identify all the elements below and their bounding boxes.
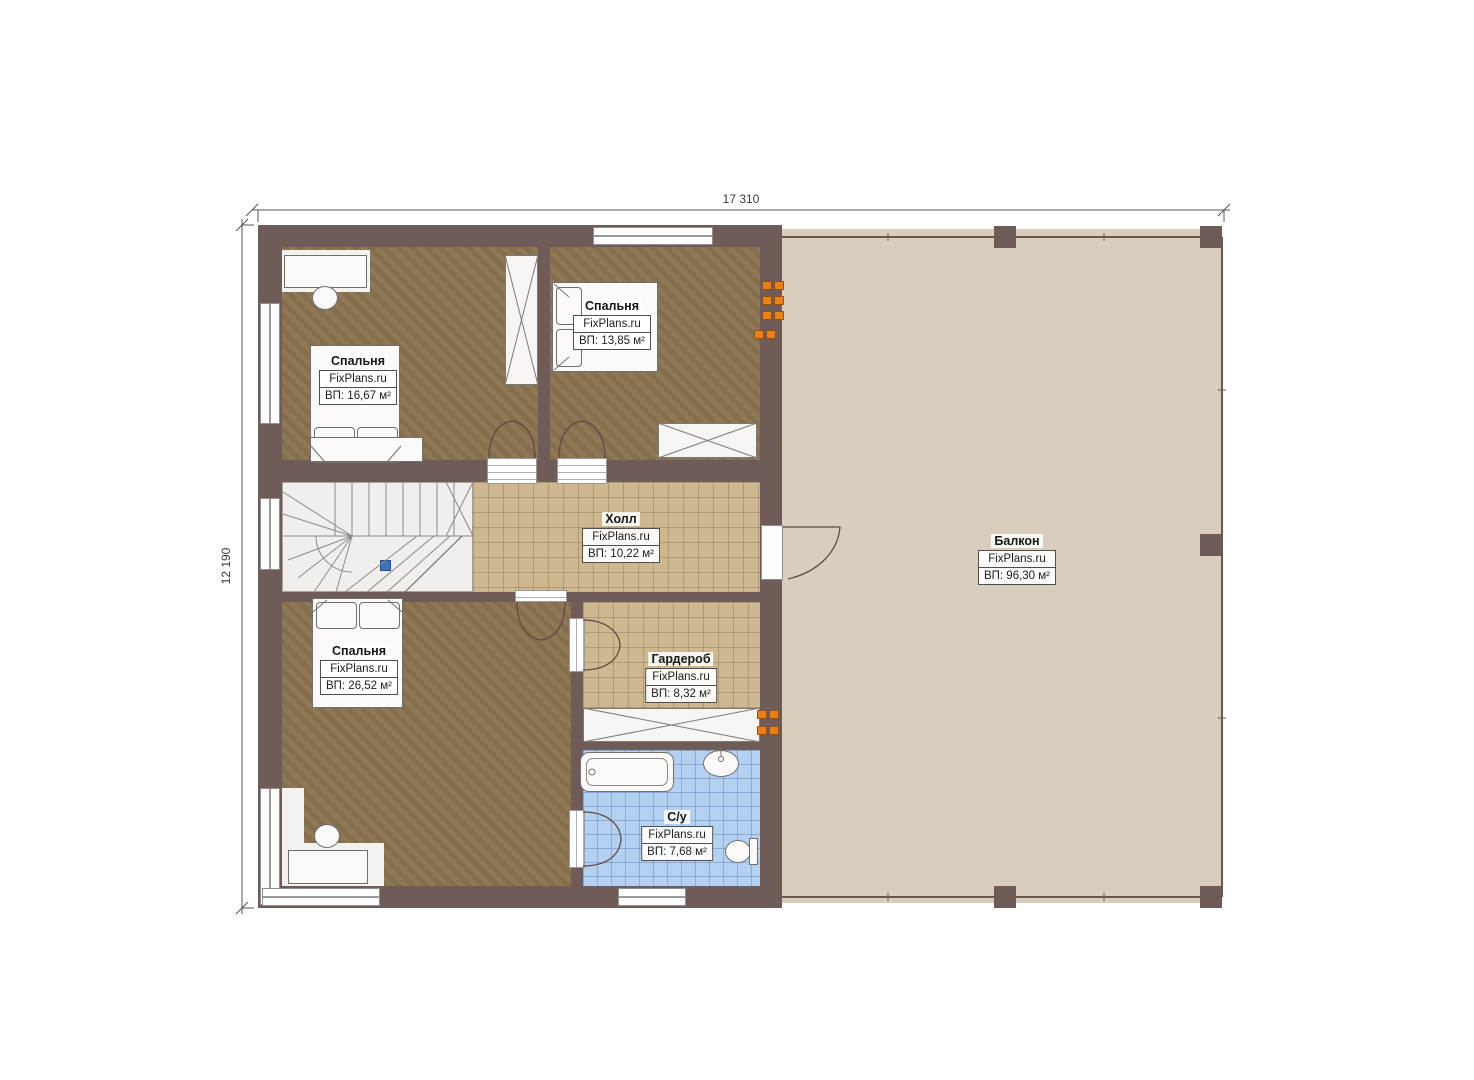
wall-wardrobe-bathroom xyxy=(583,742,760,750)
desk-symbol xyxy=(284,255,367,288)
chair-symbol xyxy=(314,824,340,848)
area-value: ВП: 96,30 м² xyxy=(979,567,1055,584)
balcony-post xyxy=(994,886,1016,908)
brand-watermark: FixPlans.ru xyxy=(583,529,659,545)
floor-plan-canvas: Спальня FixPlans.ru ВП: 16,67 м² Спальня… xyxy=(0,0,1474,1080)
brand-watermark: FixPlans.ru xyxy=(642,827,712,843)
door-sill-wardrobe xyxy=(569,618,585,672)
door-sill-bedroom-tl xyxy=(487,458,537,484)
closet-bedroom-tr-symbol xyxy=(658,423,757,458)
balcony-post xyxy=(994,226,1016,248)
area-value: ВП: 10,22 м² xyxy=(583,545,659,562)
room-label-hall: Холл FixPlans.ru ВП: 10,22 м² xyxy=(582,510,660,563)
room-name: С/у xyxy=(664,810,689,824)
area-value: ВП: 16,67 м² xyxy=(320,387,396,404)
room-name: Спальня xyxy=(329,644,389,658)
desk-symbol xyxy=(288,850,368,884)
window-bottom-2 xyxy=(618,888,686,906)
dimension-width: 17 310 xyxy=(723,192,760,206)
room-label-wardrobe: Гардероб FixPlans.ru ВП: 8,32 м² xyxy=(645,650,717,703)
staircase-area xyxy=(282,482,473,592)
pillow-symbol xyxy=(359,602,400,629)
room-name: Балкон xyxy=(991,534,1042,548)
pillow-symbol xyxy=(316,602,357,629)
balcony-post xyxy=(1200,226,1222,248)
chair-symbol xyxy=(312,286,338,310)
room-name: Спальня xyxy=(582,299,642,313)
window-left-2 xyxy=(260,498,280,570)
toilet-bowl-symbol xyxy=(725,840,751,863)
room-name: Холл xyxy=(602,512,639,526)
room-label-bedroom-bottom: Спальня FixPlans.ru ВП: 26,52 м² xyxy=(320,642,398,695)
window-left-1 xyxy=(260,303,280,424)
room-name: Гардероб xyxy=(648,652,713,666)
heater-indicator-icon xyxy=(757,726,779,735)
heater-indicator-icon xyxy=(762,281,784,290)
brand-watermark: FixPlans.ru xyxy=(574,316,650,332)
balcony-door-leaf xyxy=(761,525,783,580)
area-value: ВП: 13,85 м² xyxy=(574,332,650,349)
brand-watermark: FixPlans.ru xyxy=(320,371,396,387)
heater-indicator-icon xyxy=(762,311,784,320)
dimension-height: 12 190 xyxy=(219,548,233,585)
room-name: Спальня xyxy=(328,354,388,368)
door-sill-bedroom-tr xyxy=(557,458,607,484)
area-value: ВП: 26,52 м² xyxy=(321,677,397,694)
heater-indicator-icon xyxy=(754,330,776,339)
toilet-tank-symbol xyxy=(749,838,758,865)
brand-watermark: FixPlans.ru xyxy=(321,661,397,677)
window-bottom-1 xyxy=(262,888,380,906)
room-label-balcony: Балкон FixPlans.ru ВП: 96,30 м² xyxy=(978,532,1056,585)
area-value: ВП: 8,32 м² xyxy=(646,685,716,702)
wall-between-top-bedrooms xyxy=(538,247,550,460)
balcony-post xyxy=(1200,534,1222,556)
area-value: ВП: 7,68 м² xyxy=(642,843,712,860)
closet-wardrobe-symbol xyxy=(583,708,760,742)
door-sill-bathroom xyxy=(569,810,585,868)
brand-watermark: FixPlans.ru xyxy=(979,551,1055,567)
room-label-bedroom-top-right: Спальня FixPlans.ru ВП: 13,85 м² xyxy=(573,297,651,350)
closet-shaft-symbol xyxy=(505,255,538,385)
heater-indicator-icon xyxy=(762,296,784,305)
room-label-bathroom: С/у FixPlans.ru ВП: 7,68 м² xyxy=(641,808,713,861)
stair-marker xyxy=(380,560,391,571)
bed-bench-symbol xyxy=(310,437,423,462)
room-label-bedroom-top-left: Спальня FixPlans.ru ВП: 16,67 м² xyxy=(319,352,397,405)
door-sill-bedroom-bottom xyxy=(515,590,567,602)
balcony-post xyxy=(1200,886,1222,908)
brand-watermark: FixPlans.ru xyxy=(646,669,716,685)
bathtub-symbol xyxy=(580,752,674,792)
sink-symbol xyxy=(703,750,739,777)
heater-indicator-icon xyxy=(757,710,779,719)
window-top xyxy=(593,227,713,245)
